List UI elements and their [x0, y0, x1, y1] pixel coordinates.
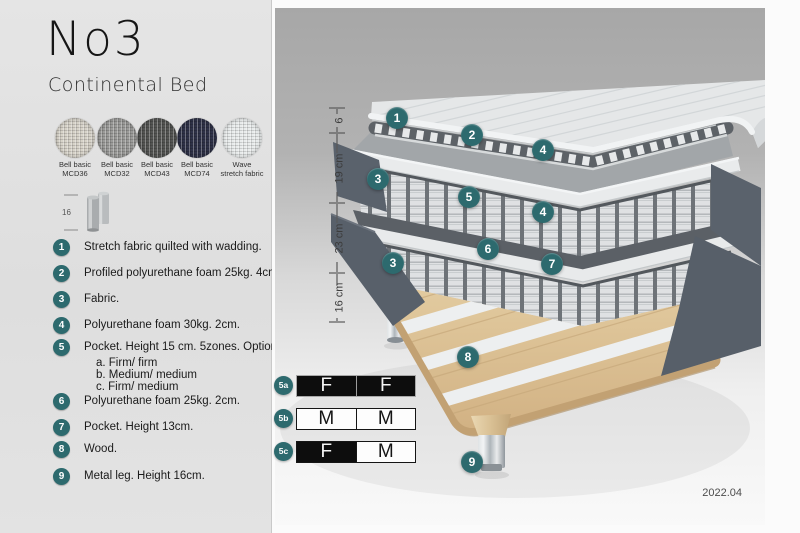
- page-title: No3: [46, 12, 146, 67]
- firmness-cell: F: [297, 442, 356, 462]
- material-text: Stretch fabric quilted with wadding.: [84, 241, 262, 253]
- firmness-badge-5c: 5c: [274, 442, 293, 461]
- material-text: Fabric.: [84, 293, 119, 305]
- callout-2: 2: [461, 124, 483, 146]
- material-text: Metal leg. Height 16cm.: [84, 470, 205, 482]
- material-item: 7 Pocket. Height 13cm.: [53, 419, 263, 437]
- material-item: 9 Metal leg. Height 16cm.: [53, 468, 263, 486]
- fabric-swatch: Bell basicMCD36: [53, 118, 97, 178]
- callout-1: 1: [386, 107, 408, 129]
- material-number-badge: 1: [53, 239, 70, 256]
- leg-dimension-icon: 16: [50, 188, 120, 236]
- fabric-swatch: Wavestretch fabric: [215, 118, 269, 178]
- fabric-swatch-label: Bell basicMCD74: [175, 161, 219, 178]
- material-number-badge: 6: [53, 393, 70, 410]
- firmness-table-5b: M M: [296, 408, 416, 430]
- material-option: a. Firm/ firm: [96, 357, 157, 369]
- material-number-badge: 4: [53, 317, 70, 334]
- callout-9: 9: [461, 451, 483, 473]
- material-item: 3 Fabric.: [53, 291, 263, 309]
- material-text: Pocket. Height 15 cm. 5zones. Option:: [84, 341, 280, 353]
- firmness-badge-5a: 5a: [274, 376, 293, 395]
- material-item: 8 Wood.: [53, 441, 263, 459]
- firmness-cell: M: [356, 409, 416, 429]
- firmness-table-5a: F F: [296, 375, 416, 397]
- firmness-cell: F: [356, 376, 416, 396]
- callout-3-upper: 3: [367, 168, 389, 190]
- firmness-table-5c: F M: [296, 441, 416, 463]
- fabric-swatch-circle: [55, 118, 95, 158]
- material-item: 1 Stretch fabric quilted with wadding.: [53, 239, 263, 257]
- dimension-label: 16 cm: [334, 270, 347, 326]
- fabric-swatch: Bell basicMCD43: [135, 118, 179, 178]
- version-date: 2022.04: [642, 487, 742, 499]
- fabric-swatch: Bell basicMCD32: [95, 118, 139, 178]
- firmness-cell: M: [297, 409, 356, 429]
- material-number-badge: 3: [53, 291, 70, 308]
- firmness-cell: F: [297, 376, 356, 396]
- dimension-label: 19 cm: [334, 141, 347, 197]
- fabric-swatch-circle: [97, 118, 137, 158]
- callout-5: 5: [458, 186, 480, 208]
- material-number-badge: 2: [53, 265, 70, 282]
- fabric-swatch-label: Bell basicMCD43: [135, 161, 179, 178]
- material-number-badge: 7: [53, 419, 70, 436]
- material-option: b. Medium/ medium: [96, 369, 197, 381]
- fabric-swatch-circle: [137, 118, 177, 158]
- material-number-badge: 5: [53, 339, 70, 356]
- material-text: Polyurethane foam 30kg. 2cm.: [84, 319, 240, 331]
- page-subtitle: Continental Bed: [48, 74, 208, 96]
- fabric-swatch-circle: [222, 118, 262, 158]
- material-text: Profiled polyurethane foam 25kg. 4cm.: [84, 267, 281, 279]
- material-item: 2 Profiled polyurethane foam 25kg. 4cm.: [53, 265, 263, 283]
- material-number-badge: 8: [53, 441, 70, 458]
- callout-4-lower: 4: [532, 201, 554, 223]
- material-text: Polyurethane foam 25kg. 2cm.: [84, 395, 240, 407]
- firmness-badge-5b: 5b: [274, 409, 293, 428]
- callout-8: 8: [457, 346, 479, 368]
- callout-3-lower: 3: [382, 252, 404, 274]
- material-text: Pocket. Height 13cm.: [84, 421, 193, 433]
- material-item: 5 Pocket. Height 15 cm. 5zones. Option:: [53, 339, 263, 357]
- firmness-cell: M: [356, 442, 416, 462]
- product-sheet: No3 Continental Bed Bell basicMCD36 Bell…: [0, 0, 800, 533]
- fabric-swatch: Bell basicMCD74: [175, 118, 219, 178]
- fabric-swatch-label: Bell basicMCD36: [53, 161, 97, 178]
- dimension-label: 23 cm: [334, 211, 347, 267]
- fabric-swatch-circle: [177, 118, 217, 158]
- material-item: 6 Polyurethane foam 25kg. 2cm.: [53, 393, 263, 411]
- material-option: c. Firm/ medium: [96, 381, 178, 393]
- material-item: 4 Polyurethane foam 30kg. 2cm.: [53, 317, 263, 335]
- material-text: Wood.: [84, 443, 117, 455]
- callout-6: 6: [477, 238, 499, 260]
- leg-dimension-value: 16: [62, 208, 71, 217]
- callout-7: 7: [541, 253, 563, 275]
- bed-cutaway-diagram: 6 19 cm 23 cm 16 cm 1 2 3 4 5 4 6 7 3 8 …: [272, 0, 800, 533]
- info-panel: No3 Continental Bed Bell basicMCD36 Bell…: [0, 0, 272, 533]
- fabric-swatch-label: Bell basicMCD32: [95, 161, 139, 178]
- callout-4-upper: 4: [532, 139, 554, 161]
- material-number-badge: 9: [53, 468, 70, 485]
- fabric-swatch-label: Wavestretch fabric: [215, 161, 269, 178]
